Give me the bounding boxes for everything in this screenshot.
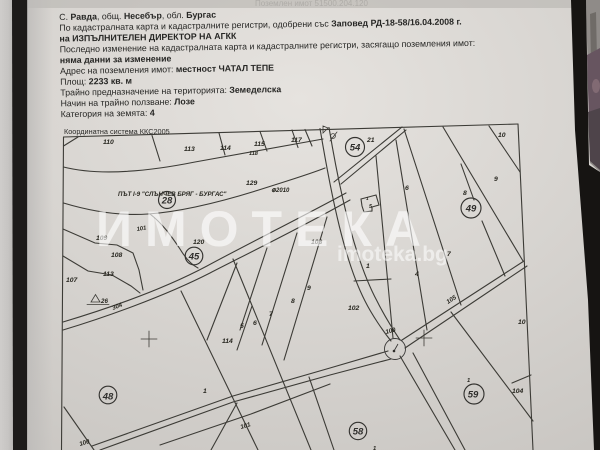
svg-text:113: 113 [103,271,114,278]
svg-text:4: 4 [414,271,419,278]
svg-text:117: 117 [291,137,303,144]
svg-text:1: 1 [203,388,207,395]
svg-text:26: 26 [100,298,108,305]
svg-text:48: 48 [102,392,114,403]
svg-text:59: 59 [468,390,479,401]
svg-text:Начин на трайно ползване: Лозе: Начин на трайно ползване: Лозе [60,96,195,108]
svg-text:8: 8 [291,298,295,305]
svg-text:10: 10 [498,132,506,139]
svg-text:imoteka.bg: imoteka.bg [337,243,448,266]
svg-text:104: 104 [512,388,524,395]
svg-text:107: 107 [66,277,79,284]
svg-text:9: 9 [494,176,498,183]
svg-text:54: 54 [350,143,361,154]
svg-text:102: 102 [348,305,360,312]
svg-text:115: 115 [254,141,265,148]
svg-text:няма данни за изменение: няма данни за изменение [60,53,172,65]
svg-text:49: 49 [465,204,477,215]
svg-text:Поземлен имот 51500.204.120: Поземлен имот 51500.204.120 [255,0,368,8]
svg-text:118: 118 [249,151,259,157]
svg-text:21: 21 [366,137,375,144]
svg-text:110: 110 [103,139,114,146]
svg-text:9: 9 [307,285,311,292]
svg-text:129: 129 [246,180,258,187]
svg-text:58: 58 [353,427,364,438]
svg-text:Категория на земята: 4: Категория на земята: 4 [61,108,155,119]
svg-text:114: 114 [220,145,231,152]
svg-text:10: 10 [518,319,526,326]
svg-text:1: 1 [467,378,470,384]
svg-text:6: 6 [253,320,257,327]
svg-text:5: 5 [240,323,244,330]
svg-text:Площ: 2233 кв. м: Площ: 2233 кв. м [60,76,132,87]
svg-text:⊕2010: ⊕2010 [271,188,290,194]
svg-text:1: 1 [373,446,376,450]
svg-text:113: 113 [184,146,195,153]
svg-text:114: 114 [222,338,233,345]
svg-text:8: 8 [463,190,467,197]
svg-text:6: 6 [405,185,409,192]
